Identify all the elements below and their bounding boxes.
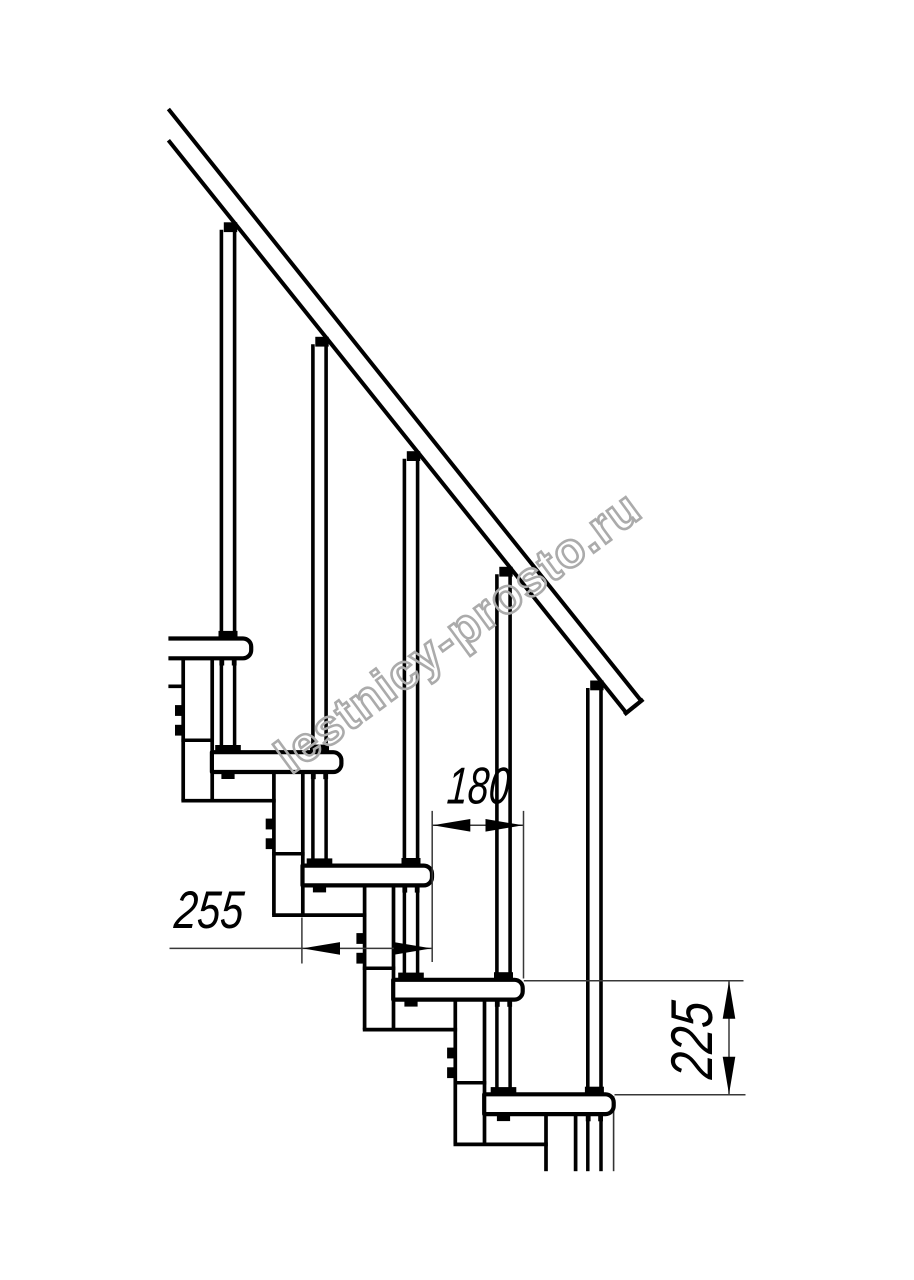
svg-text:225: 225 — [660, 998, 726, 1081]
svg-text:255: 255 — [171, 881, 246, 940]
svg-text:180: 180 — [445, 756, 512, 814]
